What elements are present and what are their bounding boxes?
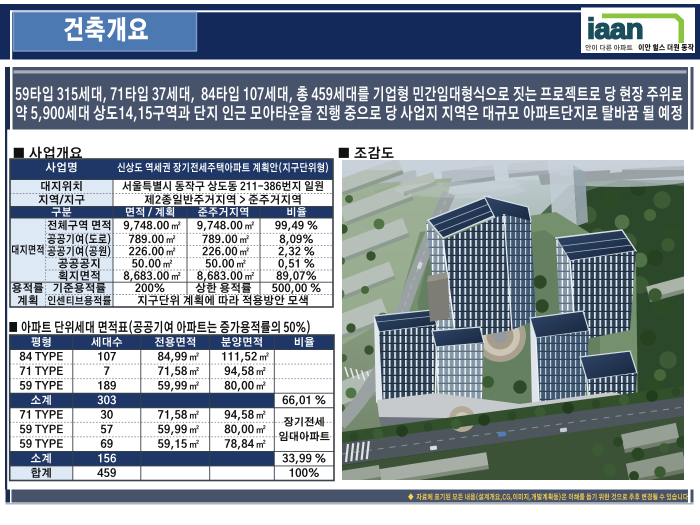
svg-text:iaan: iaan — [587, 14, 643, 46]
